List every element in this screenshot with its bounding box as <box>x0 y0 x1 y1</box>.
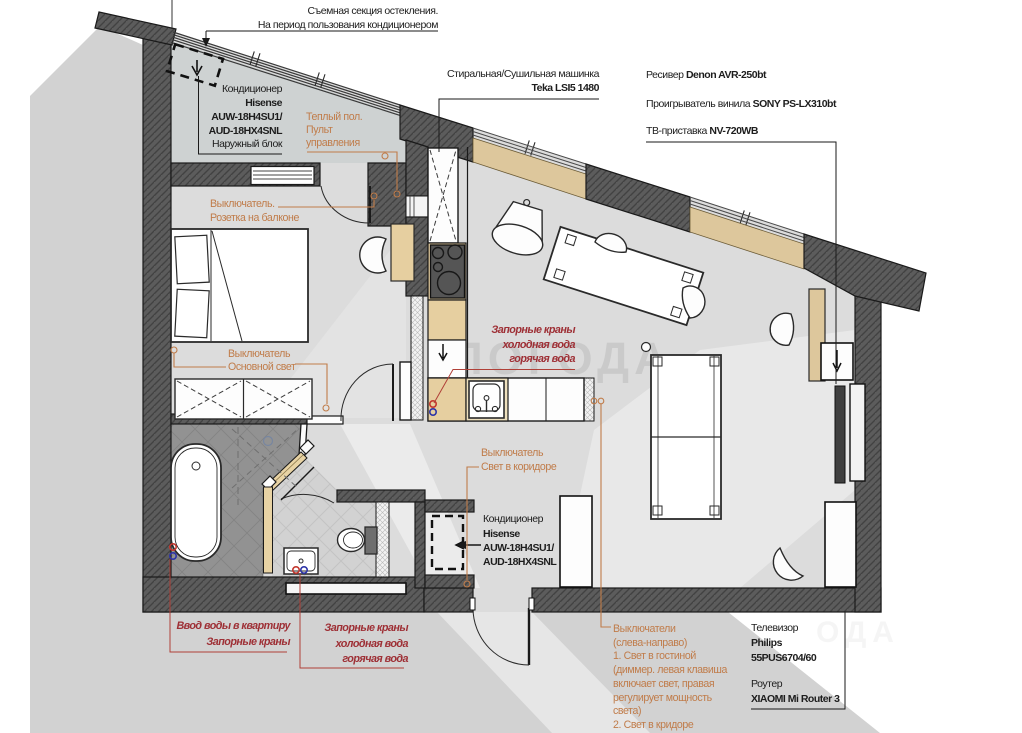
svg-text:Ввод воды в квартиру: Ввод воды в квартиру <box>176 620 291 632</box>
svg-text:ОДА: ОДА <box>816 616 900 649</box>
svg-text:AUW-18H4SU1/: AUW-18H4SU1/ <box>211 111 282 123</box>
svg-text:Наружный блок: Наружный блок <box>212 138 283 150</box>
svg-text:Запорные краны: Запорные краны <box>491 324 576 336</box>
svg-text:Выключатели: Выключатели <box>613 623 676 635</box>
svg-text:горячая вода: горячая вода <box>342 653 408 665</box>
svg-text:включает свет, правая: включает свет, правая <box>613 678 714 690</box>
svg-text:Выключатель.: Выключатель. <box>210 198 275 210</box>
svg-text:Выключатель: Выключатель <box>481 447 544 459</box>
svg-text:55PUS6704/60: 55PUS6704/60 <box>751 652 817 664</box>
svg-text:AUD-18HX4SNL: AUD-18HX4SNL <box>209 125 283 137</box>
svg-text:Теплый пол.: Теплый пол. <box>306 111 362 123</box>
svg-text:холодная вода: холодная вода <box>335 638 409 650</box>
svg-text:Hisense: Hisense <box>245 97 282 109</box>
svg-text:управления: управления <box>306 137 360 149</box>
svg-text:AUW-18H4SU1/: AUW-18H4SU1/ <box>483 542 554 554</box>
svg-text:Запорные краны: Запорные краны <box>324 622 409 634</box>
svg-text:Телевизор: Телевизор <box>751 622 799 634</box>
svg-text:1. Свет в гостиной: 1. Свет в гостиной <box>613 650 696 662</box>
svg-text:регулирует мощность: регулирует мощность <box>613 692 713 704</box>
svg-text:Teka LSI5 1480: Teka LSI5 1480 <box>531 82 599 94</box>
svg-text:Съемная секция остекления.: Съемная секция остекления. <box>308 5 438 17</box>
svg-text:Розетка на балконе: Розетка на балконе <box>210 212 299 224</box>
svg-text:XIAOMI Mi Router 3: XIAOMI Mi Router 3 <box>751 693 840 705</box>
svg-text:Hisense: Hisense <box>483 528 520 540</box>
svg-text:2. Свет в кридоре: 2. Свет в кридоре <box>613 719 694 731</box>
svg-text:Проигрыватель винила SONY PS-L: Проигрыватель винила SONY PS-LX310bt <box>646 98 837 110</box>
svg-text:холодная вода: холодная вода <box>502 339 576 351</box>
svg-text:AUD-18HX4SNL: AUD-18HX4SNL <box>483 556 557 568</box>
svg-text:(слева-направо): (слева-направо) <box>613 637 687 649</box>
svg-text:Кондиционер: Кондиционер <box>483 513 544 525</box>
svg-text:Запорные краны: Запорные краны <box>206 636 291 648</box>
svg-text:На период пользования кондицио: На период пользования кондиционером <box>258 19 438 31</box>
svg-text:Основной свет: Основной свет <box>228 361 296 373</box>
svg-text:Пульт: Пульт <box>306 124 333 136</box>
svg-text:Свет в коридоре: Свет в коридоре <box>481 461 557 473</box>
svg-text:(диммер. левая клавиша: (диммер. левая клавиша <box>613 664 727 676</box>
svg-text:Выключатель: Выключатель <box>228 348 291 360</box>
svg-text:Ресивер Denon AVR-250bt: Ресивер Denon AVR-250bt <box>646 69 767 81</box>
svg-text:Стиральная/Сушильная машинка: Стиральная/Сушильная машинка <box>447 68 600 80</box>
svg-text:Роутер: Роутер <box>751 678 783 690</box>
svg-text:горячая вода: горячая вода <box>509 353 575 365</box>
svg-text:ТВ-приставка NV-720WB: ТВ-приставка NV-720WB <box>646 125 759 137</box>
svg-text:света): света) <box>613 705 641 717</box>
svg-text:Philips: Philips <box>751 637 783 649</box>
svg-text:Кондиционер: Кондиционер <box>222 83 283 95</box>
